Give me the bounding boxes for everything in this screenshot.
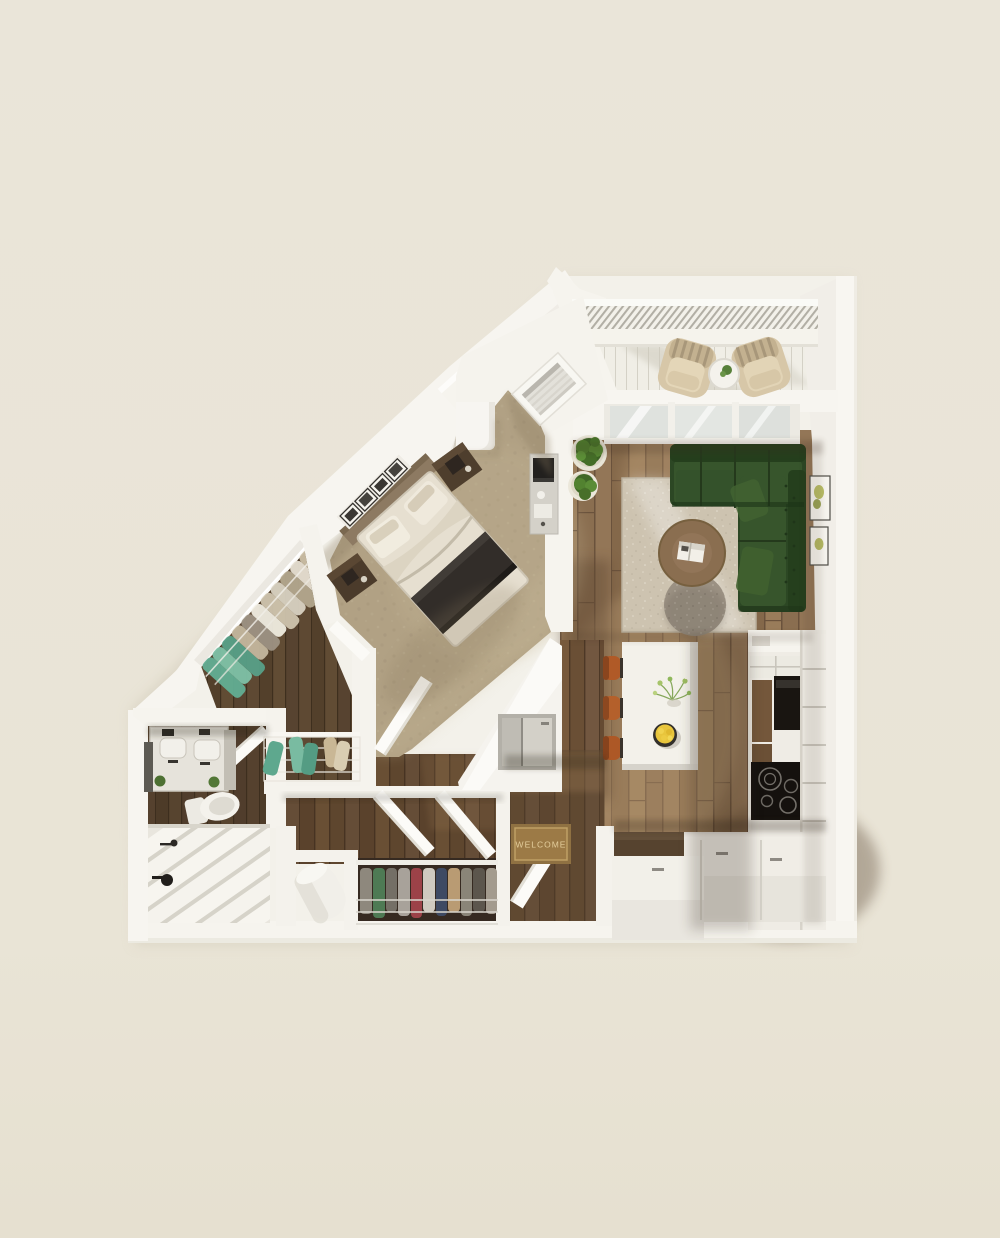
svg-text:WELCOME: WELCOME xyxy=(516,840,567,850)
